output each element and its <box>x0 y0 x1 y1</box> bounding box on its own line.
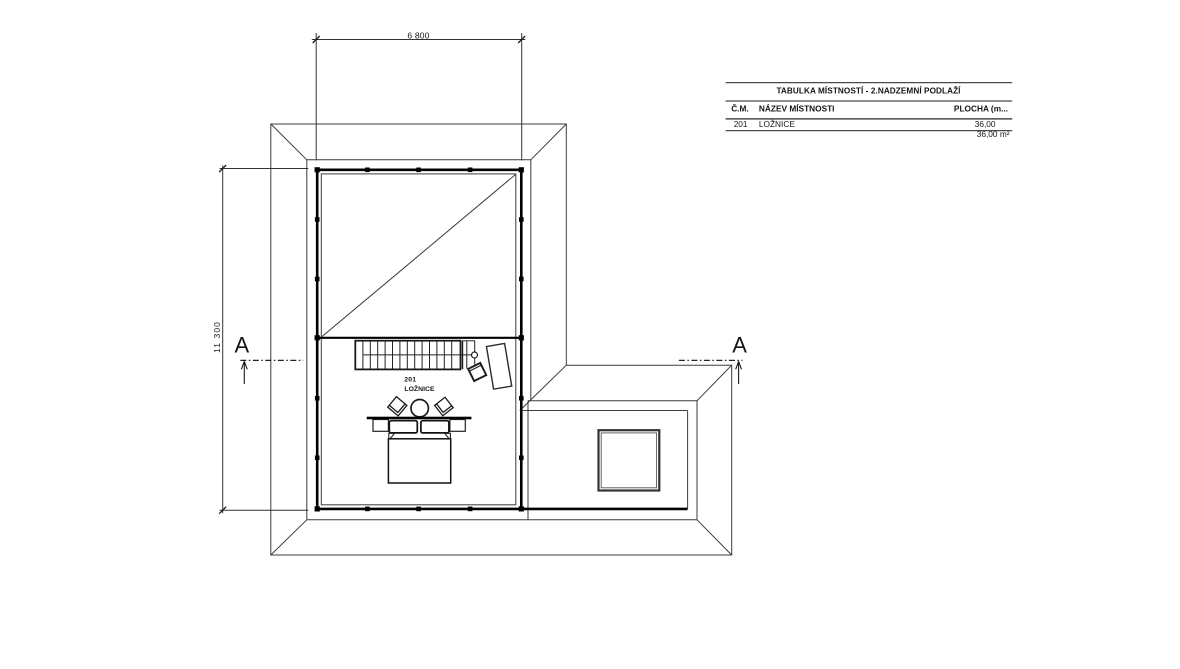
svg-text:TABULKA MÍSTNOSTÍ - 2.NADZEMNÍ: TABULKA MÍSTNOSTÍ - 2.NADZEMNÍ PODLAŽÍ <box>776 85 961 96</box>
svg-text:A: A <box>235 332 250 357</box>
svg-text:LOŽNICE: LOŽNICE <box>759 119 795 129</box>
svg-text:11 300: 11 300 <box>212 321 222 353</box>
svg-text:LOŽNICE: LOŽNICE <box>404 384 435 393</box>
svg-text:A: A <box>732 332 747 357</box>
svg-text:6 800: 6 800 <box>407 30 429 40</box>
svg-text:36,00: 36,00 <box>975 119 996 129</box>
svg-text:201: 201 <box>404 376 416 383</box>
svg-text:201: 201 <box>734 119 748 129</box>
svg-text:36,00 m²: 36,00 m² <box>977 129 1010 139</box>
svg-text:NÁZEV MÍSTNOSTI: NÁZEV MÍSTNOSTI <box>759 103 835 113</box>
svg-text:PLOCHA (m...: PLOCHA (m... <box>954 103 1008 113</box>
svg-text:Č.M.: Č.M. <box>731 102 749 113</box>
